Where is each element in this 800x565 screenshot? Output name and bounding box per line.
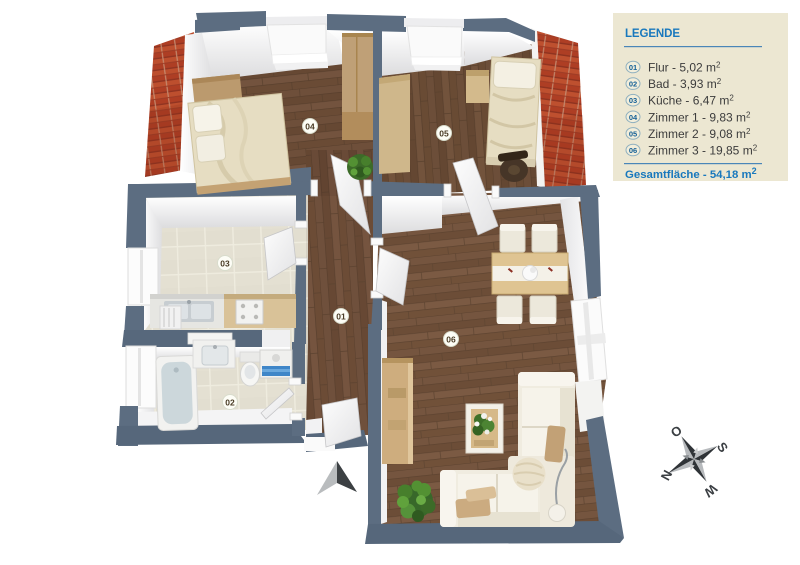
- svg-text:05: 05: [439, 129, 449, 139]
- svg-text:04: 04: [305, 122, 315, 132]
- svg-text:Bad - 3,93 m2: Bad - 3,93 m2: [648, 77, 722, 91]
- svg-text:06: 06: [629, 146, 637, 155]
- svg-text:LEGENDE: LEGENDE: [625, 28, 680, 40]
- svg-text:03: 03: [629, 96, 637, 105]
- svg-text:05: 05: [629, 129, 637, 138]
- svg-text:Zimmer 3 - 19,85 m2: Zimmer 3 - 19,85 m2: [648, 144, 758, 158]
- svg-text:04: 04: [629, 113, 638, 122]
- svg-text:02: 02: [225, 398, 235, 408]
- svg-text:01: 01: [336, 312, 346, 322]
- svg-text:Zimmer 2 - 9,08 m2: Zimmer 2 - 9,08 m2: [648, 127, 751, 141]
- svg-text:Gesamtfläche - 54,18 m2: Gesamtfläche - 54,18 m2: [625, 166, 757, 181]
- svg-text:01: 01: [629, 63, 637, 72]
- svg-text:06: 06: [446, 335, 456, 345]
- svg-text:02: 02: [629, 80, 637, 89]
- svg-text:Zimmer 1 - 9,83 m2: Zimmer 1 - 9,83 m2: [648, 110, 751, 124]
- svg-text:03: 03: [220, 259, 230, 269]
- svg-text:Küche - 6,47 m2: Küche - 6,47 m2: [648, 94, 734, 108]
- svg-text:Flur - 5,02 m2: Flur - 5,02 m2: [648, 61, 721, 75]
